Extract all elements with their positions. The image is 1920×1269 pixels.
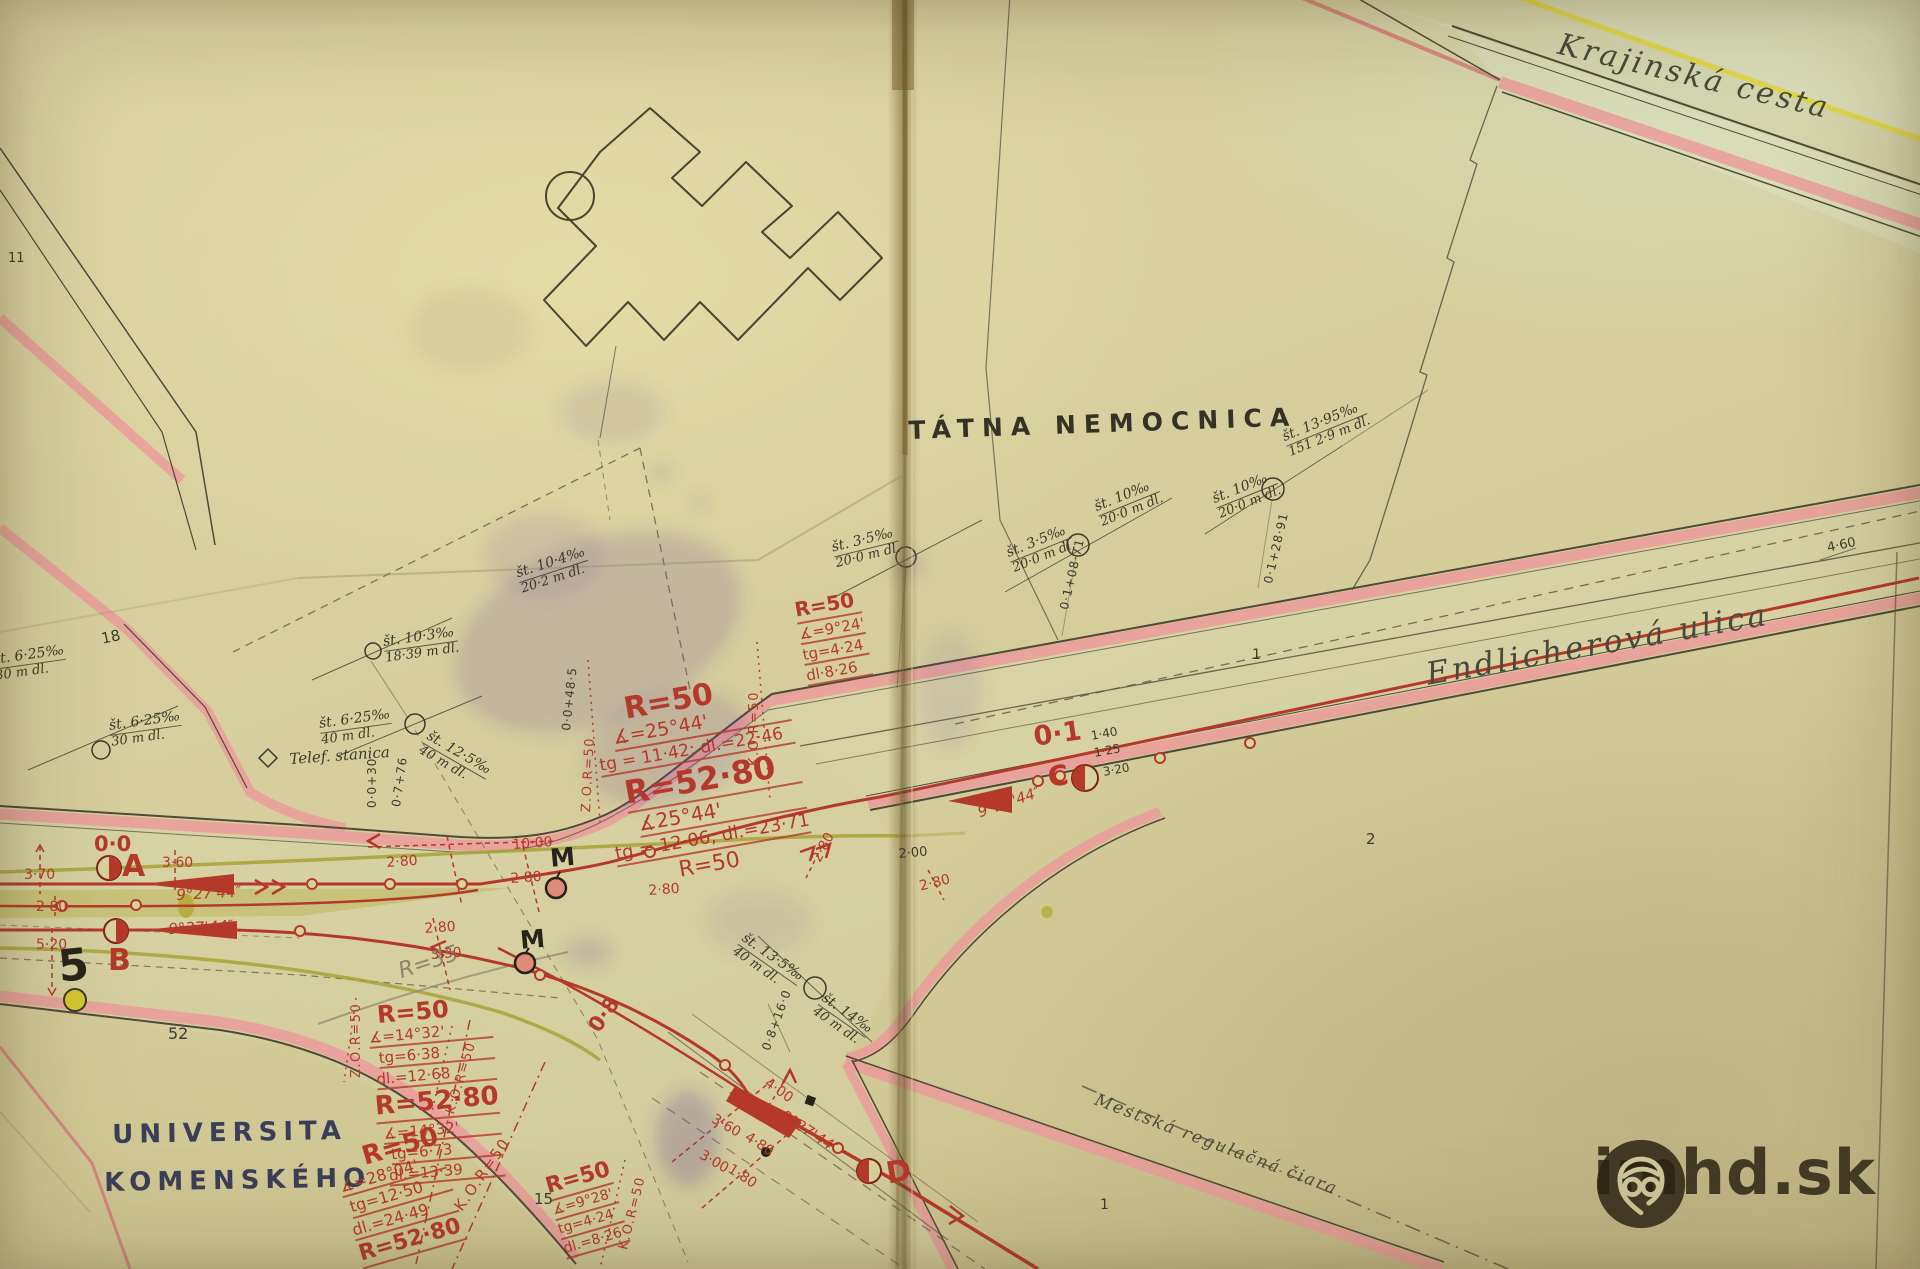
historical-map-plan: Krajinská cesta Endlicherová ulica TÁTNA…	[0, 0, 1920, 1269]
measure-label: 2·80	[510, 870, 542, 886]
parcel-number: 15	[534, 1192, 553, 1207]
parcel-number: 1	[1252, 648, 1261, 662]
measure-label: 2·80	[36, 900, 67, 914]
imhd-watermark: imhd.sk	[1593, 1136, 1876, 1209]
parcel-number: 11	[8, 252, 25, 265]
measure-label: 2·80	[648, 882, 680, 898]
switch-angle-label: 9°27'44″	[176, 885, 242, 903]
mast-label-m: M	[549, 844, 576, 871]
imhd-logo-icon	[1593, 1136, 1689, 1232]
point-label-d: D	[884, 1156, 914, 1190]
axis-label-zor: Z.O.R=50	[580, 737, 597, 813]
point-label-a: A	[122, 852, 145, 882]
measure-label: 3·70	[24, 868, 55, 882]
point-label-b: B	[108, 946, 131, 976]
measure-label: 2·80	[386, 854, 418, 870]
place-label-universita-1: UNIVERSITA	[112, 1118, 347, 1148]
parcel-number: 18	[100, 628, 122, 647]
measure-label: 3·30	[430, 946, 462, 962]
parcel-number: 52	[168, 1026, 188, 1042]
place-label-universita-2: KOMENSKÉHO	[104, 1165, 371, 1196]
mast-label-m: M	[519, 926, 546, 953]
axis-label-kor: K.O.R=50	[748, 691, 761, 766]
axis-label-zor: Z.O.R=50	[350, 1003, 363, 1078]
measure-label: 10·00	[512, 835, 553, 852]
measure-label-black: 2·00	[898, 845, 928, 860]
telephone-station-icon	[259, 749, 277, 767]
measure-label: 3·60	[162, 856, 193, 870]
parcel-number: 2	[1366, 832, 1376, 847]
chainage-label: 0·0+30	[366, 758, 378, 808]
switch-angle-label: 9°27'44″	[168, 919, 234, 937]
measure-label: 5·20	[36, 938, 67, 952]
hospital-building-outline	[544, 108, 882, 346]
parcel-number: 1	[1100, 1198, 1109, 1212]
curve-block-center: R=50 ∡=25°44' tg = 11·42; dl.=22·46 R=52…	[588, 666, 816, 893]
measure-label: 2·80	[424, 920, 456, 936]
point-label-01: 0·1	[1032, 717, 1083, 750]
point-label-c: C	[1046, 761, 1070, 792]
